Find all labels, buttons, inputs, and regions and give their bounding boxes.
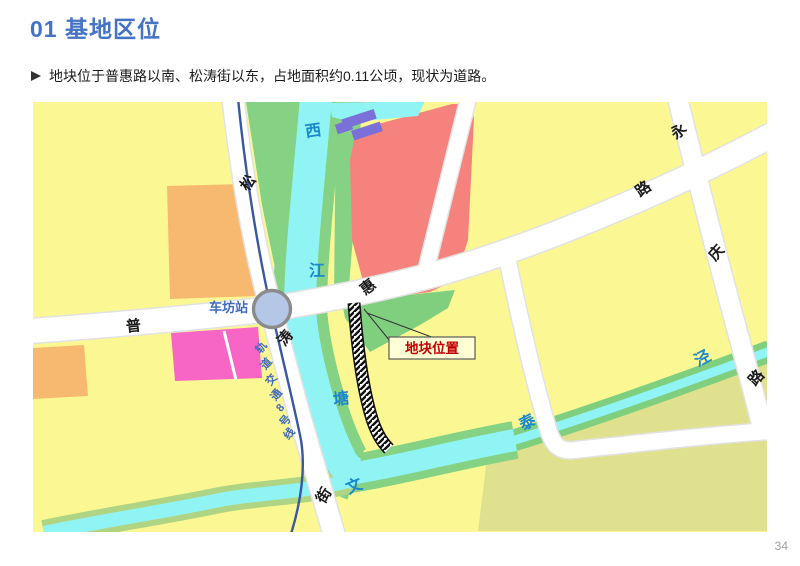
site-callout-label: 地块位置 xyxy=(405,340,459,356)
bullet-line: 地块位于普惠路以南、松涛街以东，占地面积约0.11公顷，现状为道路。 xyxy=(31,66,495,86)
page-number: 34 xyxy=(775,539,788,553)
river-label-tang: 塘 xyxy=(332,388,351,409)
site-map: 地块位置 松 涛 街 普 惠 路 永 庆 路 西 江 塘 文 泰 泾 车坊站 轨… xyxy=(33,102,767,532)
river-label-xi: 西 xyxy=(304,121,322,141)
page-title: 01 基地区位 xyxy=(30,10,161,44)
bullet-arrow-icon xyxy=(31,71,41,81)
site-map-svg: 地块位置 松 涛 街 普 惠 路 永 庆 路 西 江 塘 文 泰 泾 车坊站 轨… xyxy=(33,102,767,532)
river-label-jiang: 江 xyxy=(309,262,325,280)
station-label: 车坊站 xyxy=(209,300,248,315)
parcel-orange-southwest xyxy=(33,345,88,399)
road-label-pu: 普 xyxy=(125,316,142,335)
parcel-pink xyxy=(171,327,262,381)
bullet-text: 地块位于普惠路以南、松涛街以东，占地面积约0.11公顷，现状为道路。 xyxy=(49,66,495,86)
station-circle xyxy=(254,291,291,328)
